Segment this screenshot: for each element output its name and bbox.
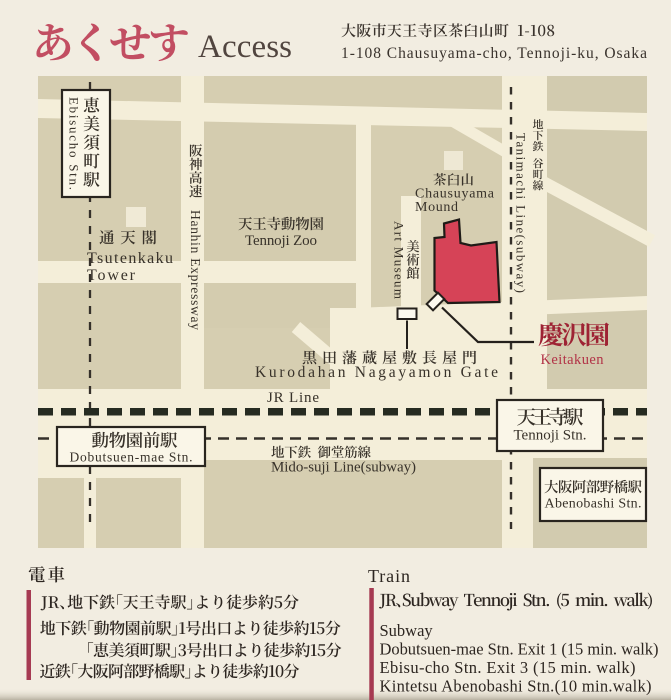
svg-text:Dobutsuen-mae Stn.: Dobutsuen-mae Stn. — [70, 450, 193, 465]
svg-text:Dobutsuen-mae Stn. Exit 1 (15: Dobutsuen-mae Stn. Exit 1 (15 min. walk) — [380, 640, 659, 659]
svg-text:Mound: Mound — [415, 200, 458, 215]
svg-text:Abenobashi Stn.: Abenobashi Stn. — [545, 497, 642, 512]
svg-text:Ebisu-cho Stn. Exit 3 (15 min: Ebisu-cho Stn. Exit 3 (15 min. walk) — [380, 658, 636, 677]
svg-text:Tennoji Zoo: Tennoji Zoo — [245, 233, 317, 249]
svg-text:Tennoji Stn.: Tennoji Stn. — [513, 428, 586, 444]
svg-text:Train: Train — [368, 566, 410, 586]
svg-text:Hanhin Expressway: Hanhin Expressway — [188, 210, 203, 330]
svg-text:Keitakuen: Keitakuen — [541, 352, 605, 368]
svg-text:1-108 Chausuyama-cho, Tennoji-: 1-108 Chausuyama-cho, Tennoji-ku, Osaka — [341, 45, 647, 62]
svg-text:Tanimachi Line(subway): Tanimachi Line(subway) — [514, 133, 529, 293]
svg-text:JR Line: JR Line — [267, 390, 319, 406]
svg-text:Access: Access — [198, 29, 292, 65]
svg-text:Ebisucho Stn.: Ebisucho Stn. — [67, 97, 82, 190]
svg-text:Mido-suji Line(subway): Mido-suji Line(subway) — [271, 460, 416, 476]
svg-text:Kintetsu Abenobashi Stn.(10 m: Kintetsu Abenobashi Stn.(10 min.walk) — [380, 677, 652, 696]
svg-text:Tsutenkaku: Tsutenkaku — [87, 250, 173, 267]
svg-text:Art Museum: Art Museum — [392, 221, 407, 299]
svg-text:Subway: Subway — [380, 621, 434, 640]
